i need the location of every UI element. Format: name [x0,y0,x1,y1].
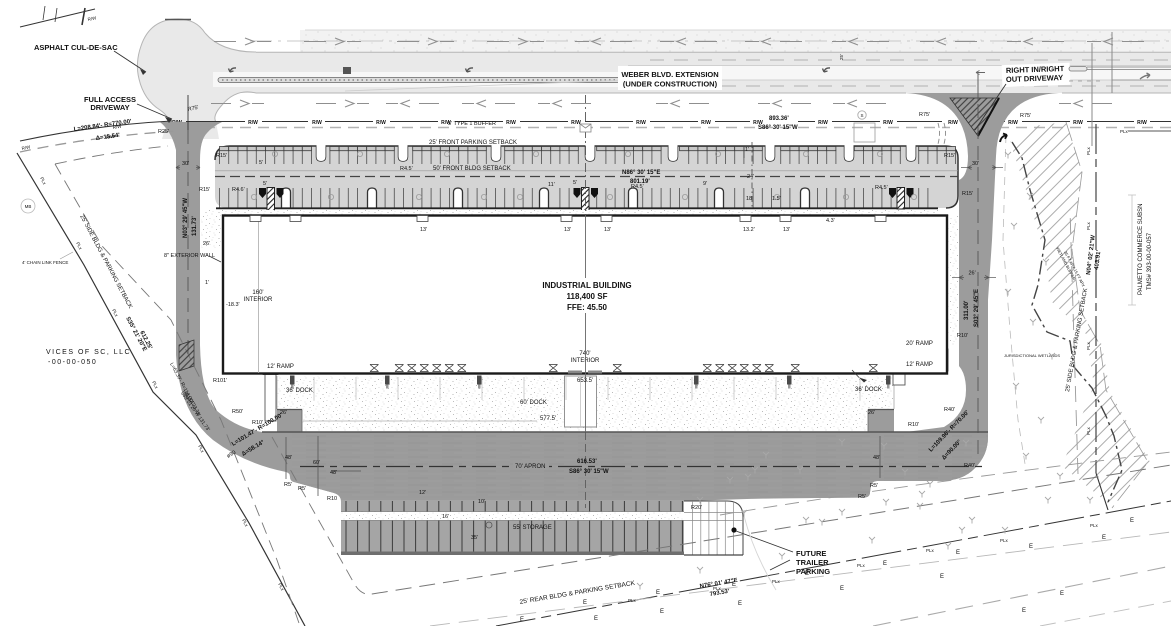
svg-text:TMS# 393-00-00-057: TMS# 393-00-00-057 [1147,232,1153,290]
svg-text:25': 25' [839,54,844,60]
svg-text:48': 48' [873,455,880,461]
svg-text:PLx: PLx [857,563,866,568]
svg-text:P: P [260,191,264,197]
svg-text:R/W: R/W [312,120,322,126]
svg-text:FUTURE: FUTURE [796,549,826,558]
svg-text:R10': R10' [908,422,919,428]
svg-text:P: P [592,191,596,197]
svg-text:131.73': 131.73' [192,216,198,236]
svg-text:DRIVEWAY: DRIVEWAY [90,103,129,112]
svg-text:577.5': 577.5' [540,416,556,422]
svg-text:-18.3': -18.3' [226,302,240,308]
svg-text:160': 160' [252,290,263,296]
svg-text:13': 13' [420,227,427,233]
svg-text:26': 26' [280,410,287,416]
svg-text:R/W: R/W [636,120,646,126]
svg-text:TRAILER: TRAILER [796,558,829,567]
svg-text:8" EXTERIOR WALL: 8" EXTERIOR WALL [164,253,215,259]
svg-text:9': 9' [703,181,707,187]
svg-text:E: E [660,609,664,615]
svg-text:R75': R75' [1020,113,1031,119]
svg-text:R5': R5' [870,483,878,489]
svg-text:118,400 SF: 118,400 SF [567,292,608,301]
svg-text:PLx: PLx [713,586,722,591]
svg-text:S03° 29' 45"E: S03° 29' 45"E [974,289,980,327]
svg-text:PLx: PLx [1086,146,1091,155]
svg-text:R25': R25' [158,129,169,135]
svg-text:35': 35' [471,535,478,541]
svg-text:18: 18 [746,196,752,202]
svg-text:30': 30' [182,161,189,167]
svg-text:R/W: R/W [1008,120,1018,126]
svg-text:E: E [583,600,587,606]
svg-text:60' DOCK: 60' DOCK [520,400,547,406]
svg-text:PLx: PLx [772,579,781,584]
svg-text:1': 1' [205,280,209,286]
svg-text:13': 13' [783,227,790,233]
svg-text:R/W: R/W [948,120,958,126]
svg-text:R/W: R/W [883,120,893,126]
svg-text:653.5': 653.5' [577,378,593,384]
svg-text:16': 16' [442,514,449,520]
svg-text:PLx: PLx [1090,523,1099,528]
svg-text:5': 5' [263,181,267,187]
svg-text:PLx: PLx [1120,129,1129,134]
svg-text:R15': R15' [944,153,955,159]
svg-text:13.2': 13.2' [743,227,755,233]
svg-text:R/W: R/W [1137,120,1147,126]
svg-text:R15': R15' [216,153,227,159]
svg-text:R/W: R/W [1073,120,1083,126]
svg-text:R5': R5' [858,494,866,500]
svg-text:R40': R40' [964,463,975,469]
svg-text:26': 26' [969,271,976,277]
svg-text:616.53': 616.53' [577,459,597,465]
svg-text:R101': R101' [213,378,227,384]
svg-text:E: E [656,590,660,596]
svg-text:25' FRONT PARKING SETBACK: 25' FRONT PARKING SETBACK [429,140,517,146]
svg-text:E: E [738,601,742,607]
svg-text:FFE: 45.50: FFE: 45.50 [567,303,608,312]
svg-text:R4.5': R4.5' [631,184,644,190]
svg-text:R/W: R/W [506,120,516,126]
svg-text:S86° 30' 15"W: S86° 30' 15"W [569,469,609,475]
svg-text:E: E [1022,608,1026,614]
svg-text:R50': R50' [232,409,243,415]
svg-text:60': 60' [313,460,320,466]
svg-text:R/W: R/W [818,120,828,126]
svg-text:ASPHALT CUL-DE-SAC: ASPHALT CUL-DE-SAC [34,43,118,52]
svg-text:PLx: PLx [926,548,935,553]
svg-text:13': 13' [564,227,571,233]
svg-text:4.3': 4.3' [826,218,835,224]
svg-text:WEBER BLVD. EXTENSION: WEBER BLVD. EXTENSION [621,70,718,79]
svg-text:E: E [1130,518,1134,524]
svg-text:E: E [1029,544,1033,550]
svg-text:36' DOCK: 36' DOCK [855,387,882,393]
svg-text:-00-00-050: -00-00-050 [48,359,97,366]
svg-text:R5': R5' [284,482,292,488]
svg-text:P: P [890,191,894,197]
svg-text:1.5': 1.5' [772,196,781,202]
svg-text:S: S [860,113,863,118]
svg-text:PLx: PLx [628,598,637,603]
svg-text:R10: R10 [327,496,337,502]
svg-text:N03° 29' 45"W: N03° 29' 45"W [183,198,189,238]
svg-text:E: E [1060,591,1064,597]
svg-text:E: E [940,574,944,580]
svg-text:MB: MB [25,204,32,209]
svg-text:R/W: R/W [248,120,258,126]
svg-text:70' APRON: 70' APRON [515,464,546,470]
svg-text:55' STORAGE: 55' STORAGE [513,525,552,531]
svg-text:R40': R40' [944,407,955,413]
svg-text:36' DOCK: 36' DOCK [286,388,313,394]
svg-text:E: E [732,582,736,588]
svg-text:PLx: PLx [1086,341,1091,350]
svg-text:26': 26' [868,410,875,416]
svg-text:S86° 30' 15"W: S86° 30' 15"W [758,125,798,131]
svg-text:E: E [883,561,887,567]
svg-text:R5': R5' [298,486,306,492]
svg-text:10': 10' [478,499,485,505]
svg-text:5': 5' [259,160,263,166]
svg-text:26': 26' [203,241,210,247]
svg-text:740': 740' [579,351,590,357]
svg-text:4' CHAIN LINK FENCE: 4' CHAIN LINK FENCE [22,260,68,265]
svg-text:INTERIOR: INTERIOR [244,297,273,303]
svg-text:E: E [840,586,844,592]
svg-text:11': 11' [548,182,555,188]
svg-text:R15': R15' [199,187,210,193]
svg-text:E: E [1102,535,1106,541]
svg-text:1': 1' [745,147,749,153]
svg-text:24': 24' [747,174,754,180]
svg-text:12' RAMP: 12' RAMP [267,364,294,370]
svg-text:311.00': 311.00' [964,300,970,320]
svg-text:PARKING: PARKING [796,567,830,576]
svg-text:13': 13' [604,227,611,233]
svg-text:P: P [278,191,282,197]
svg-text:893.36': 893.36' [769,116,789,122]
svg-text:E: E [594,616,598,622]
svg-text:R20': R20' [691,505,702,511]
svg-text:E: E [805,571,809,577]
svg-text:R75': R75' [919,112,930,118]
svg-text:PLx: PLx [1086,426,1091,435]
svg-text:50' FRONT BLDG SETBACK: 50' FRONT BLDG SETBACK [433,166,511,172]
svg-text:PALMETTO COMMERCE SUBSN: PALMETTO COMMERCE SUBSN [1138,204,1144,295]
svg-text:R15': R15' [962,191,973,197]
svg-text:E: E [956,550,960,556]
svg-text:PLx: PLx [1086,221,1091,230]
svg-text:48': 48' [330,470,337,476]
svg-text:48': 48' [285,455,292,461]
svg-text:INDUSTRIAL BUILDING: INDUSTRIAL BUILDING [542,281,631,290]
svg-text:12': 12' [419,490,426,496]
svg-text:20' RAMP: 20' RAMP [906,341,933,347]
svg-text:R4.6': R4.6' [232,187,245,193]
svg-text:(UNDER CONSTRUCTION): (UNDER CONSTRUCTION) [623,80,718,89]
svg-text:5': 5' [573,180,577,186]
svg-text:R4.5': R4.5' [400,166,413,172]
svg-text:12' RAMP: 12' RAMP [906,362,933,368]
svg-text:5' TYPE 1 BUFFER: 5' TYPE 1 BUFFER [448,121,496,127]
svg-text:R4.5': R4.5' [875,185,888,191]
svg-text:N86° 30' 15"E: N86° 30' 15"E [622,170,660,176]
svg-text:P: P [575,191,579,197]
svg-text:R10': R10' [957,333,968,339]
svg-text:PLx: PLx [1000,538,1009,543]
svg-text:30': 30' [972,161,979,167]
svg-text:R/W: R/W [376,120,386,126]
svg-text:R/W: R/W [701,120,711,126]
svg-text:E: E [520,617,524,623]
svg-text:VICES OF SC, LLC: VICES OF SC, LLC [46,349,131,356]
